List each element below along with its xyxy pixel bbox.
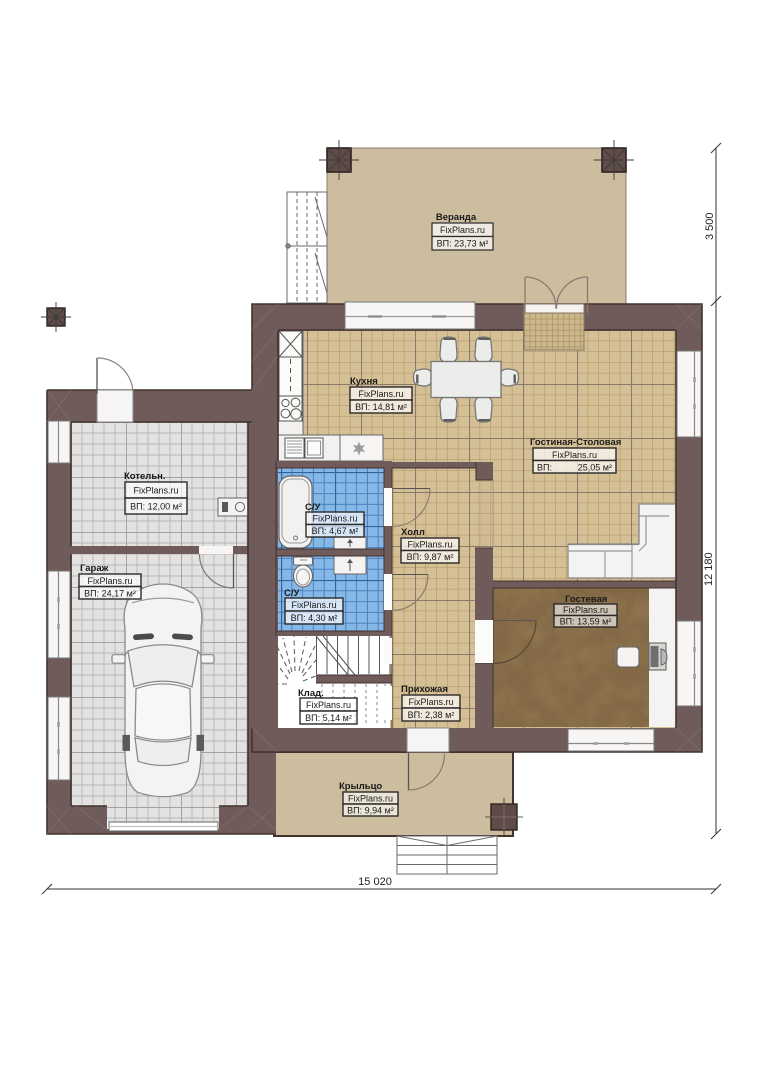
svg-text:ВП: 4,30 м²: ВП: 4,30 м² bbox=[291, 613, 338, 623]
svg-text:FixPlans.ru: FixPlans.ru bbox=[408, 697, 453, 707]
svg-text:ВП: 13,59 м²: ВП: 13,59 м² bbox=[560, 617, 612, 627]
svg-text:FixPlans.ru: FixPlans.ru bbox=[563, 605, 608, 615]
svg-text:FixPlans.ru: FixPlans.ru bbox=[440, 225, 485, 235]
svg-text:Котельн.: Котельн. bbox=[124, 471, 166, 482]
svg-text:ВП: 12,00 м²: ВП: 12,00 м² bbox=[130, 502, 182, 512]
svg-text:FixPlans.ru: FixPlans.ru bbox=[407, 540, 452, 550]
svg-text:Прихожая: Прихожая bbox=[401, 684, 448, 695]
svg-text:ВП: 24,17 м²: ВП: 24,17 м² bbox=[84, 589, 136, 599]
svg-text:Гостиная-Столовая: Гостиная-Столовая bbox=[530, 437, 621, 448]
svg-text:12 180: 12 180 bbox=[703, 552, 715, 586]
svg-text:FixPlans.ru: FixPlans.ru bbox=[133, 486, 178, 496]
svg-text:FixPlans.ru: FixPlans.ru bbox=[87, 576, 132, 586]
svg-text:Крыльцо: Крыльцо bbox=[339, 781, 382, 792]
svg-text:3 500: 3 500 bbox=[704, 212, 716, 240]
svg-text:ВП: 2,38 м²: ВП: 2,38 м² bbox=[408, 710, 455, 720]
svg-text:ВП: 5,14 м²: ВП: 5,14 м² bbox=[305, 713, 352, 723]
svg-text:25,05 м²: 25,05 м² bbox=[578, 463, 612, 473]
svg-text:FixPlans.ru: FixPlans.ru bbox=[348, 794, 393, 804]
svg-text:Веранда: Веранда bbox=[436, 212, 477, 223]
svg-text:FixPlans.ru: FixPlans.ru bbox=[552, 450, 597, 460]
svg-text:FixPlans.ru: FixPlans.ru bbox=[306, 700, 351, 710]
svg-text:ВП: 14,81 м²: ВП: 14,81 м² bbox=[355, 402, 407, 412]
svg-text:ВП: 4,67 м²: ВП: 4,67 м² bbox=[312, 526, 359, 536]
svg-text:FixPlans.ru: FixPlans.ru bbox=[291, 600, 336, 610]
svg-text:Холл: Холл bbox=[401, 527, 425, 538]
svg-text:ВП:: ВП: bbox=[537, 463, 552, 473]
svg-text:ВП: 23,73 м²: ВП: 23,73 м² bbox=[437, 239, 489, 249]
svg-text:Гараж: Гараж bbox=[80, 563, 109, 574]
svg-text:Кухня: Кухня bbox=[350, 376, 378, 387]
svg-text:FixPlans.ru: FixPlans.ru bbox=[358, 389, 403, 399]
svg-text:ВП: 9,94 м²: ВП: 9,94 м² bbox=[347, 806, 394, 816]
svg-text:ВП: 9,87 м²: ВП: 9,87 м² bbox=[407, 552, 454, 562]
svg-text:FixPlans.ru: FixPlans.ru bbox=[312, 514, 357, 524]
svg-text:15 020: 15 020 bbox=[358, 876, 392, 888]
